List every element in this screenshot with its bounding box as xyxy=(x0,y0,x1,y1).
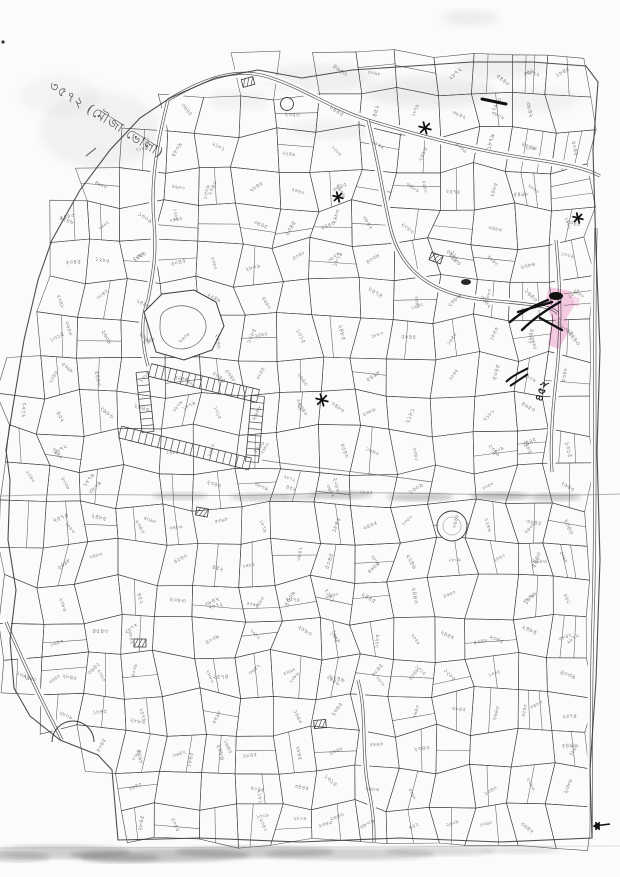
parcel-number-label: ২৫৭৪ xyxy=(562,714,577,720)
star-ink-mark xyxy=(576,216,579,219)
ink-blob xyxy=(549,292,563,300)
parcel-number-label: ৫৪৪৩ xyxy=(369,742,383,749)
parcel-number-label: ২৩৪৫ xyxy=(65,259,81,267)
parcel-number-label: ২৩৪৩ xyxy=(413,745,429,753)
fold-crease-smudge xyxy=(280,494,320,500)
parcel-number-label: ৫০৪৫ xyxy=(401,335,417,341)
star-ink-mark xyxy=(423,126,426,129)
star-ink-mark xyxy=(336,195,339,198)
parcel-number-label: ৫৪৯৮ xyxy=(513,192,529,199)
scan-mottle xyxy=(500,88,580,112)
fold-crease-smudge xyxy=(529,493,581,501)
small-pond xyxy=(281,98,294,111)
parcel-number-label: ২৪৮৫ xyxy=(166,450,179,456)
parcel-number-label: ৩০৪৫ xyxy=(451,706,465,713)
star-ink-mark xyxy=(320,398,323,401)
scanned-map-page: ২১৮১২৩৪০১৩০৯২৩৫৩২২৪৬২৪৪৩২৩৪৫৫৩৪৮১৩১৫২৬৪৩… xyxy=(0,0,620,877)
scan-mottle xyxy=(365,76,495,108)
fold-crease-smudge xyxy=(152,492,208,500)
parcel-number-label: ২৫৭৪ xyxy=(446,189,461,196)
parcel-number-label: ৫৪৯৮ xyxy=(562,743,577,750)
parcel-number-label: ২৫৭৪ xyxy=(525,147,537,152)
bottom-scan-shadow xyxy=(385,846,495,856)
cadastral-map: ২১৮১২৩৪০১৩০৯২৩৫৩২২৪৬২৪৪৩২৩৪৫৫৩৪৮১৩১৫২৬৪৩… xyxy=(0,0,620,877)
ink-blob xyxy=(461,279,471,285)
bottom-scan-shadow xyxy=(80,853,160,863)
parcel-number-label: ২৮০৯ xyxy=(448,557,461,563)
bottom-scan-shadow xyxy=(480,846,560,854)
parcel-number-label: ৪৫৪৩ xyxy=(92,628,108,635)
scan-mottle xyxy=(442,10,498,26)
parcel-number-label: ২১৮১ xyxy=(20,402,28,418)
parcel-number-label: ২৮০৯ xyxy=(293,816,306,822)
fold-crease-smudge xyxy=(470,492,530,500)
fold-crease-smudge xyxy=(386,493,454,501)
scan-speck xyxy=(1,40,4,43)
